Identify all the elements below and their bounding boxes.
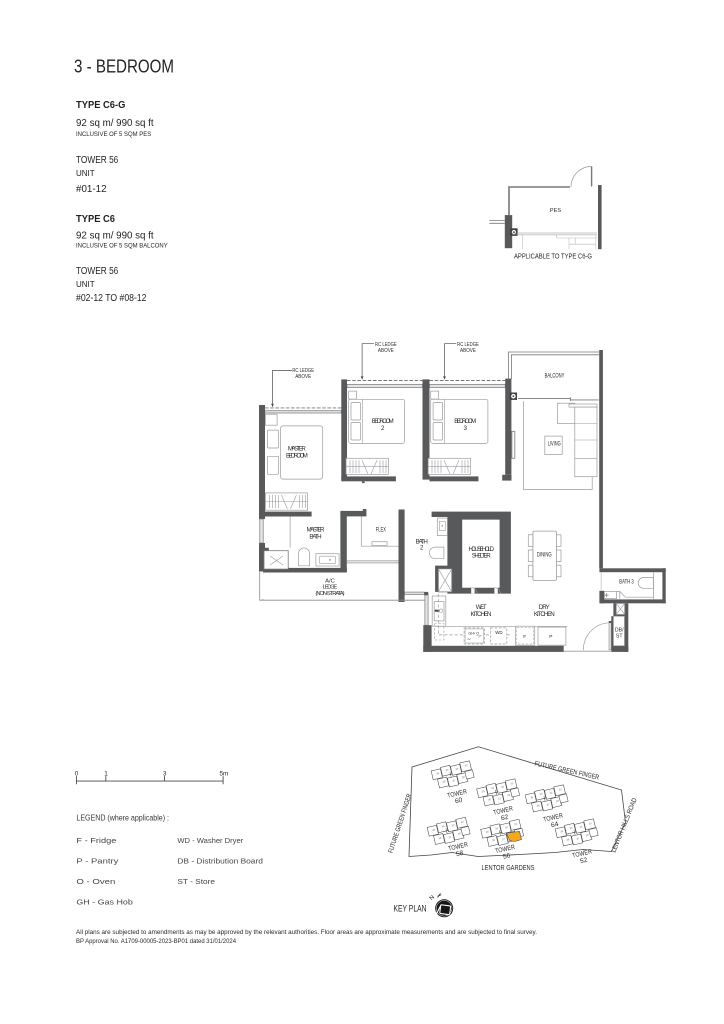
svg-text:O - Oven: O - Oven [76, 879, 115, 886]
svg-text:3 - BEDROOM: 3 - BEDROOM [74, 56, 174, 76]
svg-text:92 sq m/ 990 sq ft: 92 sq m/ 990 sq ft [76, 117, 154, 129]
svg-text:P - Pantry: P - Pantry [76, 859, 119, 866]
svg-text:F: F [523, 634, 526, 640]
svg-text:52: 52 [579, 857, 588, 866]
svg-text:62: 62 [500, 814, 509, 823]
svg-text:A/C: A/C [325, 578, 335, 584]
svg-text:SHELTER: SHELTER [472, 553, 492, 560]
svg-text:FUTURE GREEN FINGER: FUTURE GREEN FINGER [534, 760, 600, 781]
svg-text:All plans are subjected to ame: All plans are subjected to amendments as… [76, 929, 537, 936]
svg-text:PES: PES [550, 208, 561, 214]
svg-text:TYPE C6-G: TYPE C6-G [76, 99, 125, 111]
svg-text:INCLUSIVE OF 5 SQM BALCONY: INCLUSIVE OF 5 SQM BALCONY [76, 243, 168, 250]
svg-text:5m: 5m [220, 770, 229, 777]
svg-text:N: N [429, 895, 436, 902]
svg-text:TOWER 56: TOWER 56 [76, 266, 119, 277]
svg-text:ABOVE: ABOVE [295, 374, 311, 380]
svg-text:LENTOR HILLS ROAD: LENTOR HILLS ROAD [611, 797, 639, 853]
svg-text:WD: WD [495, 630, 502, 635]
svg-text:FLEX: FLEX [376, 526, 386, 533]
svg-text:LIVING: LIVING [548, 441, 561, 448]
svg-text:58: 58 [455, 850, 464, 859]
svg-text:3: 3 [463, 425, 467, 432]
svg-text:#02-12 TO #08-12: #02-12 TO #08-12 [76, 293, 147, 304]
svg-text:1: 1 [104, 770, 108, 777]
svg-text:RC LEDGE: RC LEDGE [292, 368, 314, 374]
svg-text:3: 3 [163, 770, 167, 777]
svg-text:LEGEND (where applicable) :: LEGEND (where applicable) : [76, 814, 169, 823]
svg-text:ABOVE: ABOVE [460, 348, 476, 354]
svg-text:TYPE C6: TYPE C6 [76, 213, 115, 225]
svg-text:LENTOR GARDENS: LENTOR GARDENS [482, 863, 535, 872]
svg-text:2: 2 [381, 425, 385, 432]
svg-text:UNIT: UNIT [76, 280, 95, 289]
svg-text:TOWER 56: TOWER 56 [76, 155, 119, 166]
svg-text:P: P [549, 634, 552, 640]
svg-text:KITCHEN: KITCHEN [471, 611, 492, 618]
svg-text:KITCHEN: KITCHEN [534, 611, 555, 618]
svg-text:GH/ O: GH/ O [468, 631, 479, 635]
svg-text:#01-12: #01-12 [76, 184, 107, 195]
svg-text:56: 56 [502, 852, 511, 861]
svg-text:F - Fridge: F - Fridge [76, 838, 116, 845]
svg-text:APPLICABLE TO TYPE C6-G: APPLICABLE TO TYPE C6-G [514, 252, 592, 261]
svg-text:ABOVE: ABOVE [378, 348, 394, 354]
svg-text:(NON-STRATA): (NON-STRATA) [316, 591, 345, 597]
svg-text:GH - Gas Hob: GH - Gas Hob [76, 900, 133, 907]
svg-text:BP Approval No. A1709-00005-20: BP Approval No. A1709-00005-2023-BP01 da… [76, 938, 236, 945]
svg-text:DB - Distribution Board: DB - Distribution Board [177, 859, 263, 866]
svg-text:60: 60 [454, 797, 463, 806]
svg-text:0: 0 [75, 770, 79, 777]
svg-text:KEY PLAN: KEY PLAN [394, 904, 427, 914]
svg-text:ST - Store: ST - Store [177, 879, 215, 886]
svg-text:ST: ST [616, 633, 623, 639]
svg-text:INCLUSIVE OF 5 SQM PES: INCLUSIVE OF 5 SQM PES [76, 131, 152, 138]
svg-text:RC LEDGE: RC LEDGE [457, 342, 479, 348]
svg-text:22: 22 [467, 637, 471, 641]
svg-text:92 sq m/ 990 sq ft: 92 sq m/ 990 sq ft [76, 230, 154, 242]
svg-text:BEDROOM: BEDROOM [286, 452, 308, 459]
svg-text:WD - Washer Dryer: WD - Washer Dryer [177, 838, 244, 845]
svg-text:LEDGE: LEDGE [323, 585, 338, 591]
svg-text:BATH: BATH [309, 533, 321, 540]
svg-text:UNIT: UNIT [76, 169, 95, 178]
svg-text:BALCONY: BALCONY [545, 373, 565, 380]
svg-text:BATH 3: BATH 3 [619, 579, 634, 586]
svg-text:DINING: DINING [537, 551, 552, 558]
svg-text:2: 2 [420, 545, 424, 552]
svg-text:RC LEDGE: RC LEDGE [375, 342, 397, 348]
